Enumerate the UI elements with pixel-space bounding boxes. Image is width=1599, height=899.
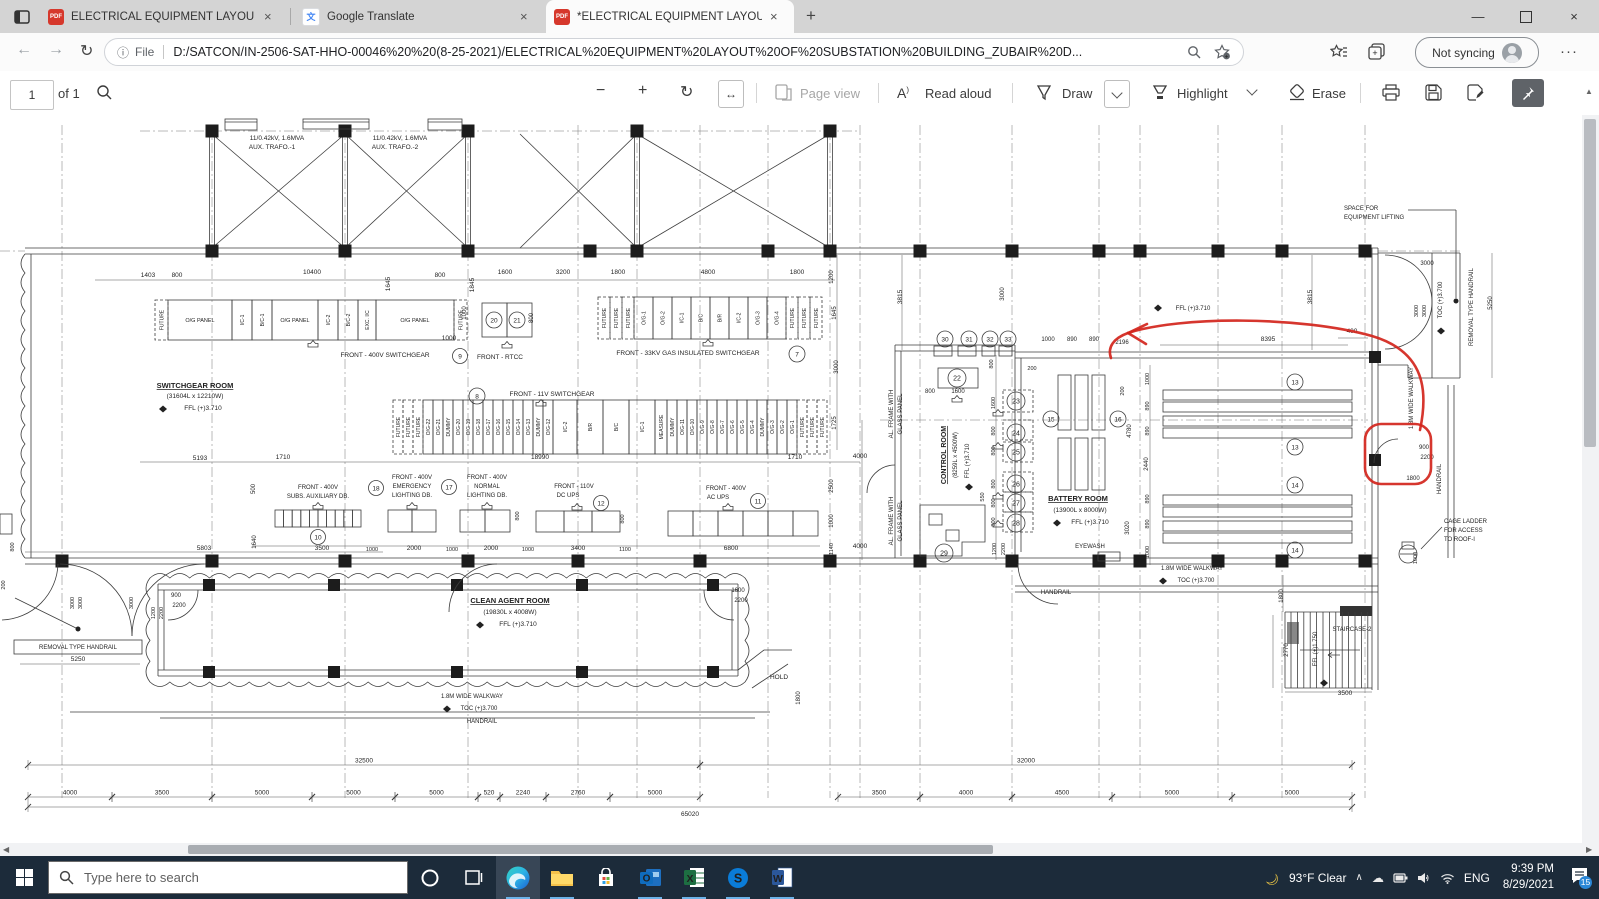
speaker-icon[interactable] <box>1417 872 1431 884</box>
svg-text:900: 900 <box>171 593 182 599</box>
svg-text:15: 15 <box>1047 416 1055 423</box>
back-icon[interactable]: ← <box>16 41 32 59</box>
taskbar-outlook-button[interactable]: O <box>628 856 672 899</box>
svg-text:2240: 2240 <box>516 790 531 797</box>
svg-text:2200: 2200 <box>734 598 748 604</box>
address-bar: ← → ↻ ⓘ File D:/SATCON/IN-2506-SAT-HHO-0… <box>0 33 1599 72</box>
pdf-page: FUTUREO/G PANELI/C-1B/C-1O/G PANELI/C-2B… <box>0 115 1599 856</box>
tab-title: Google Translate <box>327 11 512 23</box>
svg-text:1000: 1000 <box>829 514 835 528</box>
svg-text:3200: 3200 <box>556 269 571 276</box>
svg-text:900: 900 <box>1419 445 1430 451</box>
refresh-icon[interactable]: ↻ <box>80 41 93 61</box>
svg-text:1200: 1200 <box>151 607 157 619</box>
taskbar-excel-button[interactable]: X <box>672 856 716 899</box>
show-hidden-icons[interactable]: ∧ <box>1355 872 1362 883</box>
windows-logo-icon <box>16 869 33 886</box>
svg-text:3000: 3000 <box>78 597 84 609</box>
divider <box>1012 83 1013 103</box>
svg-text:3020: 3020 <box>1125 521 1131 535</box>
svg-text:REMOVAL TYPE HANDRAIL: REMOVAL TYPE HANDRAIL <box>1469 267 1475 346</box>
svg-text:32500: 32500 <box>355 758 373 765</box>
draw-icon[interactable] <box>1036 84 1052 102</box>
svg-text:O/G-6: O/G-6 <box>730 420 736 434</box>
svg-text:1000: 1000 <box>1145 373 1151 385</box>
svg-text:2196: 2196 <box>1115 340 1129 346</box>
svg-text:800: 800 <box>620 514 626 523</box>
svg-text:2200: 2200 <box>159 607 165 619</box>
collections-icon[interactable]: + <box>1368 43 1387 61</box>
svg-text:FRONT - 110V: FRONT - 110V <box>554 484 593 490</box>
svg-text:BATTERY ROOM: BATTERY ROOM <box>1048 494 1108 503</box>
tab-bar: PDF ELECTRICAL EQUIPMENT LAYOU × 文 Googl… <box>0 0 1599 33</box>
svg-text:DUMMY: DUMMY <box>536 417 542 437</box>
svg-text:O: O <box>642 874 650 885</box>
svg-text:1140: 1140 <box>829 543 835 555</box>
svg-text:FUTURE: FUTURE <box>626 307 632 328</box>
svg-text:23: 23 <box>1012 398 1020 405</box>
svg-text:FUTURE: FUTURE <box>614 307 620 328</box>
find-in-document-icon[interactable] <box>96 84 113 101</box>
svg-text:B/C-1: B/C-1 <box>260 313 266 326</box>
cortana-icon <box>420 868 440 888</box>
page-view-icon[interactable] <box>775 84 793 102</box>
task-view-icon <box>465 868 484 887</box>
svg-text:1000: 1000 <box>1413 552 1419 564</box>
svg-text:3815: 3815 <box>897 289 904 304</box>
svg-text:1600: 1600 <box>991 397 997 409</box>
svg-text:EMERGENCY: EMERGENCY <box>393 484 432 490</box>
erase-label[interactable]: Erase <box>1312 86 1346 101</box>
svg-text:800: 800 <box>515 511 521 520</box>
svg-text:O/G-15: O/G-15 <box>506 419 512 436</box>
svg-text:1800: 1800 <box>796 691 802 705</box>
chevron-down-icon <box>1111 87 1122 98</box>
svg-text:FUTURE: FUTURE <box>790 307 796 328</box>
svg-text:O/G-1: O/G-1 <box>641 311 647 325</box>
svg-text:800: 800 <box>991 426 997 435</box>
svg-text:2440: 2440 <box>1144 457 1150 471</box>
close-button[interactable]: × <box>1551 0 1597 33</box>
svg-text:FUTURE: FUTURE <box>814 307 820 328</box>
page-number-input[interactable] <box>10 80 54 110</box>
drawing-text: 9782021101817121122232425262728293031323… <box>1 135 1494 818</box>
tab-electrical-layout-1[interactable]: PDF ELECTRICAL EQUIPMENT LAYOU × <box>40 0 288 33</box>
svg-text:5803: 5803 <box>197 545 212 552</box>
svg-text:HANDRAIL: HANDRAIL <box>1041 590 1072 596</box>
svg-text:1640: 1640 <box>252 535 258 549</box>
floor-plan-drawing: FUTUREO/G PANELI/C-1B/C-1O/G PANELI/C-2B… <box>0 115 1582 843</box>
close-tab-icon[interactable]: × <box>770 9 778 24</box>
svg-text:4000: 4000 <box>853 543 868 550</box>
svg-text:200: 200 <box>1027 366 1036 372</box>
profile-button[interactable]: Not syncing <box>1415 37 1539 68</box>
notification-count-badge: 15 <box>1579 876 1592 889</box>
tab-title: *ELECTRICAL EQUIPMENT LAYOU <box>577 11 762 23</box>
word-icon: W <box>771 867 793 888</box>
edge-icon <box>505 865 531 891</box>
tab-google-translate[interactable]: 文 Google Translate × <box>294 0 542 33</box>
save-icon[interactable] <box>1425 84 1442 101</box>
svg-text:1645: 1645 <box>385 276 392 291</box>
chevron-down-icon[interactable] <box>1246 84 1257 95</box>
svg-text:2200: 2200 <box>1001 543 1007 555</box>
svg-text:O/G-21: O/G-21 <box>436 419 442 436</box>
svg-text:TO ROOF-I: TO ROOF-I <box>1444 537 1475 543</box>
weather-text[interactable]: 93°F Clear <box>1289 871 1347 885</box>
svg-text:800: 800 <box>991 479 997 488</box>
svg-text:FUTURE: FUTURE <box>800 416 806 437</box>
svg-text:O/G-1: O/G-1 <box>790 420 796 434</box>
svg-text:27: 27 <box>1012 500 1020 507</box>
svg-text:S: S <box>734 871 742 885</box>
horizontal-scrollbar[interactable]: ◀ ▶ <box>0 843 1599 856</box>
svg-text:3500: 3500 <box>1338 690 1353 697</box>
zoom-out-icon[interactable]: − <box>596 82 605 100</box>
time: 9:39 PM <box>1503 862 1554 878</box>
svg-text:890: 890 <box>1089 337 1100 343</box>
svg-text:O/G-8: O/G-8 <box>710 420 716 434</box>
svg-text:O/G-7: O/G-7 <box>720 420 726 434</box>
svg-text:5250: 5250 <box>71 656 86 663</box>
tab-actions-icon <box>14 9 30 25</box>
svg-text:SUBS. AUXILIARY DB.: SUBS. AUXILIARY DB. <box>287 494 349 500</box>
svg-text:2770: 2770 <box>1284 643 1290 657</box>
minimize-button[interactable]: — <box>1455 0 1501 33</box>
svg-text:800: 800 <box>989 359 995 368</box>
scroll-right-icon[interactable]: ▶ <box>1586 845 1592 854</box>
vertical-scrollbar-thumb[interactable] <box>1584 119 1596 447</box>
read-aloud-icon[interactable]: A) <box>897 85 909 101</box>
svg-text:890: 890 <box>1145 494 1151 503</box>
svg-text:3815: 3815 <box>1307 289 1314 304</box>
address-input[interactable]: ⓘ File D:/SATCON/IN-2506-SAT-HHO-00046%2… <box>104 38 1244 66</box>
svg-text:O/G-12: O/G-12 <box>546 419 552 436</box>
svg-text:12: 12 <box>597 500 605 507</box>
svg-text:3000: 3000 <box>1422 305 1428 317</box>
taskbar-edge-button[interactable] <box>496 856 540 899</box>
task-view-button[interactable] <box>452 856 496 899</box>
svg-text:31: 31 <box>965 336 973 343</box>
svg-text:DUMMY: DUMMY <box>670 417 676 437</box>
svg-text:O/G-9: O/G-9 <box>700 420 706 434</box>
svg-text:LIGHTING DB.: LIGHTING DB. <box>467 493 507 499</box>
svg-text:550: 550 <box>980 492 986 501</box>
close-tab-icon[interactable]: × <box>264 9 272 24</box>
svg-text:FRONT - 11V SWITCHGEAR: FRONT - 11V SWITCHGEAR <box>510 391 595 398</box>
svg-text:AUX. TRAFO.-1: AUX. TRAFO.-1 <box>249 144 296 151</box>
new-tab-button[interactable]: + <box>806 6 816 26</box>
svg-text:13: 13 <box>1291 444 1299 451</box>
favorite-star-icon[interactable]: + <box>1214 44 1231 60</box>
save-as-icon[interactable] <box>1467 84 1486 101</box>
svg-text:4000: 4000 <box>959 790 974 797</box>
svg-text:18990: 18990 <box>531 454 549 461</box>
outlook-icon: O <box>639 867 662 888</box>
file-explorer-icon <box>550 868 574 888</box>
read-aloud-label[interactable]: Read aloud <box>925 86 992 101</box>
svg-text:DUMMY: DUMMY <box>760 417 766 437</box>
tab-title: ELECTRICAL EQUIPMENT LAYOU <box>71 11 256 23</box>
draw-options-button[interactable] <box>1104 80 1130 108</box>
svg-text:DUMMY: DUMMY <box>446 417 452 437</box>
rotate-icon[interactable]: ↻ <box>680 82 693 102</box>
svg-text:HANDRAIL: HANDRAIL <box>467 719 498 725</box>
pdf-toolbar: of 1 − + ↻ ↔ Page view A) Read aloud Dra… <box>0 71 1599 116</box>
svg-text:FUTURE: FUTURE <box>810 416 816 437</box>
svg-text:I/C-1: I/C-1 <box>640 421 646 432</box>
svg-text:(8259L x 4500W): (8259L x 4500W) <box>953 432 959 478</box>
svg-text:1000: 1000 <box>522 547 534 553</box>
svg-text:FRONT - 400V: FRONT - 400V <box>467 475 507 481</box>
scroll-up-icon[interactable]: ▲ <box>1585 87 1593 96</box>
scroll-left-icon[interactable]: ◀ <box>3 845 9 854</box>
draw-label[interactable]: Draw <box>1062 86 1092 101</box>
taskbar-word-button[interactable]: W <box>760 856 804 899</box>
svg-text:O/G-3: O/G-3 <box>770 420 776 434</box>
taskbar-skype-button[interactable]: S <box>716 856 760 899</box>
svg-text:18: 18 <box>372 485 380 492</box>
svg-text:4780: 4780 <box>1127 424 1133 438</box>
svg-text:3500: 3500 <box>155 790 170 797</box>
highlight-icon[interactable] <box>1152 84 1168 102</box>
cortana-button[interactable] <box>408 856 452 899</box>
svg-text:O/G PANEL: O/G PANEL <box>280 318 309 324</box>
grid-lines <box>0 125 1460 798</box>
divider <box>1360 83 1361 103</box>
svg-text:FUTURE: FUTURE <box>406 416 412 437</box>
zoom-in-icon[interactable]: + <box>638 82 647 100</box>
taskbar-explorer-button[interactable] <box>540 856 584 899</box>
svg-text:HOLD: HOLD <box>770 674 788 681</box>
svg-text:1800: 1800 <box>611 269 626 276</box>
onedrive-cloud-icon[interactable]: ☁ <box>1372 871 1384 885</box>
search-icon[interactable] <box>1187 45 1202 60</box>
svg-text:O/G-2: O/G-2 <box>660 311 666 325</box>
translate-icon: 文 <box>302 8 320 26</box>
svg-text:2000: 2000 <box>484 545 499 552</box>
svg-text:FUTURE: FUTURE <box>820 416 826 437</box>
svg-text:8395: 8395 <box>1261 336 1276 343</box>
svg-text:4000: 4000 <box>63 790 78 797</box>
svg-text:AC UPS: AC UPS <box>707 495 729 501</box>
svg-text:1000: 1000 <box>446 547 458 553</box>
svg-text:(31604L x 12210W): (31604L x 12210W) <box>167 393 224 400</box>
close-tab-icon[interactable]: × <box>520 9 528 24</box>
tab-actions-button[interactable] <box>8 5 36 29</box>
svg-text:O/G-14: O/G-14 <box>516 419 522 436</box>
svg-text:20: 20 <box>490 317 498 324</box>
address-mode: File <box>135 45 154 59</box>
svg-text:AL. FRAME WITH: AL. FRAME WITH <box>889 497 895 546</box>
svg-text:1600: 1600 <box>951 389 965 395</box>
svg-text:3000: 3000 <box>1420 261 1434 267</box>
svg-text:(19830L x 4008W): (19830L x 4008W) <box>483 609 536 616</box>
svg-text:O/G-11: O/G-11 <box>680 419 686 435</box>
svg-text:5193: 5193 <box>193 455 208 462</box>
svg-text:16: 16 <box>1114 416 1122 423</box>
svg-text:11: 11 <box>755 498 762 505</box>
svg-text:NORMAL: NORMAL <box>474 484 500 490</box>
vertical-scrollbar[interactable] <box>1582 115 1599 843</box>
favorites-bar-icon[interactable] <box>1330 44 1348 61</box>
svg-text:4800: 4800 <box>701 269 716 276</box>
svg-text:800: 800 <box>435 272 446 279</box>
tab-separator <box>290 8 291 25</box>
svg-text:W: W <box>773 873 783 885</box>
svg-text:1200: 1200 <box>992 543 998 555</box>
svg-text:21: 21 <box>513 317 521 324</box>
svg-text:I/C-2: I/C-2 <box>736 312 742 323</box>
svg-text:CLEAN AGENT ROOM: CLEAN AGENT ROOM <box>470 596 549 605</box>
svg-text:SWITCHGEAR ROOM: SWITCHGEAR ROOM <box>157 381 234 390</box>
svg-text:AL. FRAME WITH: AL. FRAME WITH <box>889 390 895 439</box>
svg-text:DC UPS: DC UPS <box>557 493 580 499</box>
svg-text:890: 890 <box>1145 519 1151 528</box>
fit-to-width-icon[interactable]: ↔ <box>718 80 744 108</box>
svg-text:FRONT - 400V: FRONT - 400V <box>706 486 746 492</box>
svg-text:1000: 1000 <box>1145 546 1151 558</box>
svg-text:32000: 32000 <box>1017 758 1035 765</box>
svg-text:800: 800 <box>925 389 936 395</box>
svg-text:800: 800 <box>991 498 997 507</box>
svg-text:8: 8 <box>475 393 479 400</box>
erase-icon[interactable] <box>1288 84 1306 102</box>
notification-center-button[interactable]: 15 <box>1567 865 1593 891</box>
svg-text:O/G-18: O/G-18 <box>476 419 482 436</box>
svg-text:4500: 4500 <box>1055 790 1070 797</box>
battery-icon[interactable] <box>1393 872 1408 884</box>
svg-text:O/G-16: O/G-16 <box>496 419 502 436</box>
svg-text:FFL (+)3.710: FFL (+)3.710 <box>184 405 222 412</box>
avatar <box>1502 43 1522 63</box>
print-icon[interactable] <box>1382 84 1400 101</box>
svg-text:13: 13 <box>1291 379 1299 386</box>
svg-text:800: 800 <box>10 542 16 551</box>
info-icon[interactable]: ⓘ <box>117 44 129 61</box>
svg-text:4000: 4000 <box>853 453 868 460</box>
svg-text:O/G-22: O/G-22 <box>426 419 432 436</box>
svg-text:FRONT - 400V SWITCHGEAR: FRONT - 400V SWITCHGEAR <box>340 352 429 359</box>
svg-text:LIGHTING DB.: LIGHTING DB. <box>392 493 432 499</box>
svg-text:9: 9 <box>458 353 462 360</box>
svg-text:I/C-2: I/C-2 <box>326 314 332 325</box>
svg-text:2000: 2000 <box>407 545 422 552</box>
svg-text:3500: 3500 <box>315 545 330 552</box>
svg-text:1600: 1600 <box>498 269 513 276</box>
pin-icon <box>1521 86 1535 100</box>
page-view-label[interactable]: Page view <box>800 86 860 101</box>
svg-text:65020: 65020 <box>681 811 699 818</box>
svg-text:FUTURE: FUTURE <box>802 307 808 328</box>
svg-text:200: 200 <box>1 580 7 589</box>
svg-text:26: 26 <box>1012 481 1020 488</box>
svg-text:5000: 5000 <box>429 790 444 797</box>
svg-text:FFL (+)3.710: FFL (+)3.710 <box>1176 306 1211 312</box>
svg-text:FOR ACCESS: FOR ACCESS <box>1444 528 1483 534</box>
svg-text:3000: 3000 <box>1414 305 1420 317</box>
svg-text:32: 32 <box>986 336 994 343</box>
svg-text:B/C: B/C <box>614 422 620 431</box>
svg-text:1800: 1800 <box>1406 476 1420 482</box>
svg-text:GLASS PANEL: GLASS PANEL <box>898 500 904 542</box>
svg-text:890: 890 <box>1067 337 1078 343</box>
svg-text:1645: 1645 <box>832 306 838 320</box>
svg-text:B/C: B/C <box>698 313 704 322</box>
svg-text:O/G-20: O/G-20 <box>456 419 462 436</box>
svg-text:520: 520 <box>484 790 495 797</box>
search-icon <box>59 870 74 885</box>
microsoft-store-icon <box>596 868 616 888</box>
structure <box>0 119 1492 718</box>
svg-text:O/G PANEL: O/G PANEL <box>400 318 429 324</box>
svg-text:890: 890 <box>1145 401 1151 410</box>
svg-text:1725: 1725 <box>832 416 838 430</box>
svg-text:FUTURE: FUTURE <box>396 416 402 437</box>
settings-menu-icon[interactable]: ··· <box>1560 43 1578 60</box>
svg-text:1600: 1600 <box>731 588 745 594</box>
divider <box>756 83 757 103</box>
svg-text:2500: 2500 <box>829 479 835 493</box>
svg-text:1000: 1000 <box>442 335 457 342</box>
svg-text:1800: 1800 <box>1279 589 1285 603</box>
svg-text:1.8M WIDE WALKWAY: 1.8M WIDE WALKWAY <box>441 694 503 700</box>
svg-text:890: 890 <box>1145 426 1151 435</box>
svg-text:EXC. I/C: EXC. I/C <box>365 310 371 330</box>
svg-text:800: 800 <box>991 517 997 526</box>
svg-text:1200: 1200 <box>829 270 835 284</box>
pdf-icon: PDF <box>48 9 64 25</box>
svg-text:SPACE FOR: SPACE FOR <box>1344 206 1379 212</box>
svg-text:25: 25 <box>1012 449 1020 456</box>
address-url: D:/SATCON/IN-2506-SAT-HHO-00046%20%20(8-… <box>173 45 1179 59</box>
svg-text:FFL (+)3.710: FFL (+)3.710 <box>499 621 537 628</box>
network-icon[interactable] <box>1440 872 1455 884</box>
pin-toolbar-button[interactable] <box>1512 79 1544 107</box>
divider <box>163 45 164 59</box>
forward-icon[interactable]: → <box>48 41 64 59</box>
svg-text:1845: 1845 <box>469 277 476 292</box>
horizontal-scrollbar-thumb[interactable] <box>188 845 993 854</box>
svg-text:+: + <box>1372 48 1377 58</box>
svg-text:14: 14 <box>1291 547 1299 554</box>
maximize-button[interactable] <box>1503 0 1549 33</box>
svg-text:O/G-4: O/G-4 <box>750 420 756 434</box>
svg-text:FFL (+)3.710: FFL (+)3.710 <box>965 443 971 478</box>
svg-text:CONTROL ROOM: CONTROL ROOM <box>941 426 948 484</box>
clock[interactable]: 9:39 PM 8/29/2021 <box>1503 862 1554 893</box>
svg-text:1800: 1800 <box>790 269 805 276</box>
svg-text:CAGE LADDER: CAGE LADDER <box>1444 519 1488 525</box>
svg-text:29: 29 <box>940 550 948 557</box>
start-button[interactable] <box>0 856 48 899</box>
svg-text:EYEWASH: EYEWASH <box>1075 544 1105 550</box>
skype-icon: S <box>727 867 749 889</box>
taskbar-search-input[interactable]: Type here to search <box>48 861 408 894</box>
date: 8/29/2021 <box>1503 878 1554 894</box>
svg-text:3400: 3400 <box>571 545 586 552</box>
tab-electrical-layout-active[interactable]: PDF *ELECTRICAL EQUIPMENT LAYOU × <box>546 0 794 33</box>
svg-text:5000: 5000 <box>648 790 663 797</box>
taskbar-store-button[interactable] <box>584 856 628 899</box>
svg-text:STAIRCASE-2: STAIRCASE-2 <box>1333 627 1373 633</box>
svg-text:11/0.42kV, 1.6MVA: 11/0.42kV, 1.6MVA <box>373 135 428 142</box>
highlight-label[interactable]: Highlight <box>1177 86 1228 101</box>
svg-text:O/G-2: O/G-2 <box>780 420 786 434</box>
weather-moon-icon[interactable]: ☾ <box>1260 865 1285 890</box>
language-indicator[interactable]: ENG <box>1464 871 1490 885</box>
svg-text:1.8M WIDE WALKWAY: 1.8M WIDE WALKWAY <box>1409 367 1415 429</box>
